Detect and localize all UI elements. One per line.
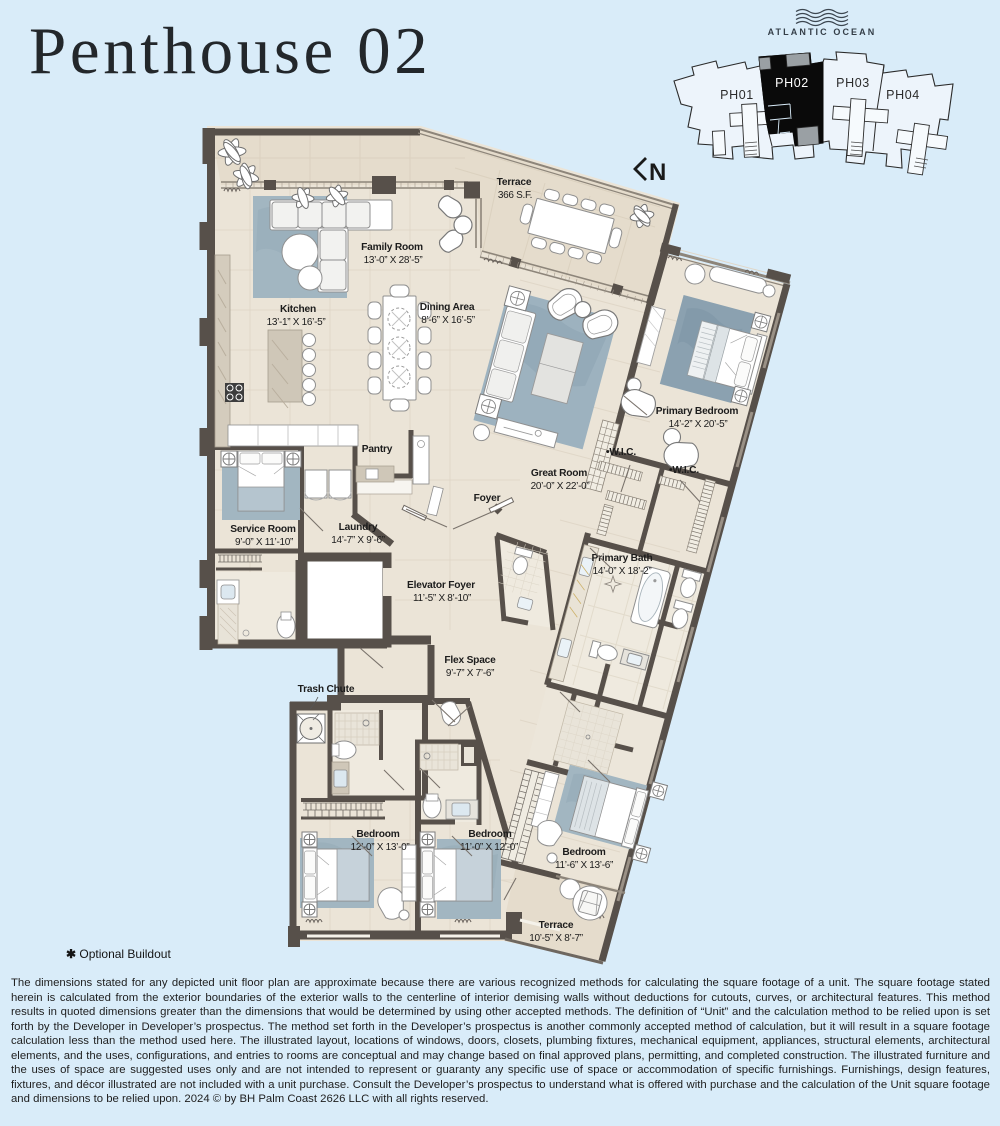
svg-text:Terrace: Terrace	[497, 177, 532, 188]
svg-text:Flex Space: Flex Space	[444, 655, 496, 666]
svg-text:11’-6” X 13’-6”: 11’-6” X 13’-6”	[555, 860, 613, 871]
svg-text:366 S.F.: 366 S.F.	[498, 190, 532, 201]
svg-text:•W.I.C.: •W.I.C.	[669, 465, 699, 476]
svg-text:14’-0” X 18’-2”: 14’-0” X 18’-2”	[593, 566, 652, 577]
svg-text:Elevator Foyer: Elevator Foyer	[407, 580, 475, 591]
svg-text:Great Room: Great Room	[531, 468, 587, 479]
svg-text:Laundry: Laundry	[339, 522, 378, 533]
svg-text:Foyer: Foyer	[474, 493, 501, 504]
svg-text:13’-0” X 28’-5”: 13’-0” X 28’-5”	[364, 255, 423, 266]
svg-text:20’-0” X 22’-0”: 20’-0” X 22’-0”	[531, 481, 590, 492]
svg-text:10’-5” X 8’-7”: 10’-5” X 8’-7”	[529, 933, 583, 944]
svg-text:Service Room: Service Room	[230, 524, 296, 535]
svg-text:9’-0” X 11’-10”: 9’-0” X 11’-10”	[235, 537, 293, 548]
svg-text:Family Room: Family Room	[361, 242, 423, 253]
svg-text:Trash Chute: Trash Chute	[298, 684, 355, 695]
svg-text:Terrace: Terrace	[539, 920, 574, 931]
svg-text:11’-0” X 12’-0”: 11’-0” X 12’-0”	[460, 842, 518, 853]
svg-text:Pantry: Pantry	[362, 444, 393, 455]
svg-text:PH01: PH01	[720, 88, 754, 102]
svg-text:14’-2” X 20’-5”: 14’-2” X 20’-5”	[669, 419, 728, 430]
svg-text:N: N	[649, 159, 666, 186]
svg-text:14’-7” X 9’-6”: 14’-7” X 9’-6”	[331, 535, 385, 546]
svg-text:Bedroom: Bedroom	[562, 847, 605, 858]
svg-text:PH04: PH04	[886, 88, 920, 102]
svg-text:Kitchen: Kitchen	[280, 304, 316, 315]
svg-text:Bedroom: Bedroom	[356, 829, 399, 840]
svg-text:PH02: PH02	[775, 76, 809, 90]
svg-text:Bedroom: Bedroom	[468, 829, 511, 840]
svg-text:8’-6” X 16’-5”: 8’-6” X 16’-5”	[421, 315, 475, 326]
svg-text:PH03: PH03	[836, 76, 870, 90]
svg-text:Dining Area: Dining Area	[420, 302, 475, 313]
svg-text:Primary Bedroom: Primary Bedroom	[656, 406, 739, 417]
svg-text:11’-5” X 8’-10”: 11’-5” X 8’-10”	[413, 593, 471, 604]
svg-text:•W.I.C.: •W.I.C.	[606, 447, 636, 458]
svg-text:13’-1” X 16’-5”: 13’-1” X 16’-5”	[267, 317, 326, 328]
svg-text:ATLANTIC OCEAN: ATLANTIC OCEAN	[768, 27, 877, 37]
svg-text:9’-7” X 7’-6”: 9’-7” X 7’-6”	[446, 668, 494, 679]
